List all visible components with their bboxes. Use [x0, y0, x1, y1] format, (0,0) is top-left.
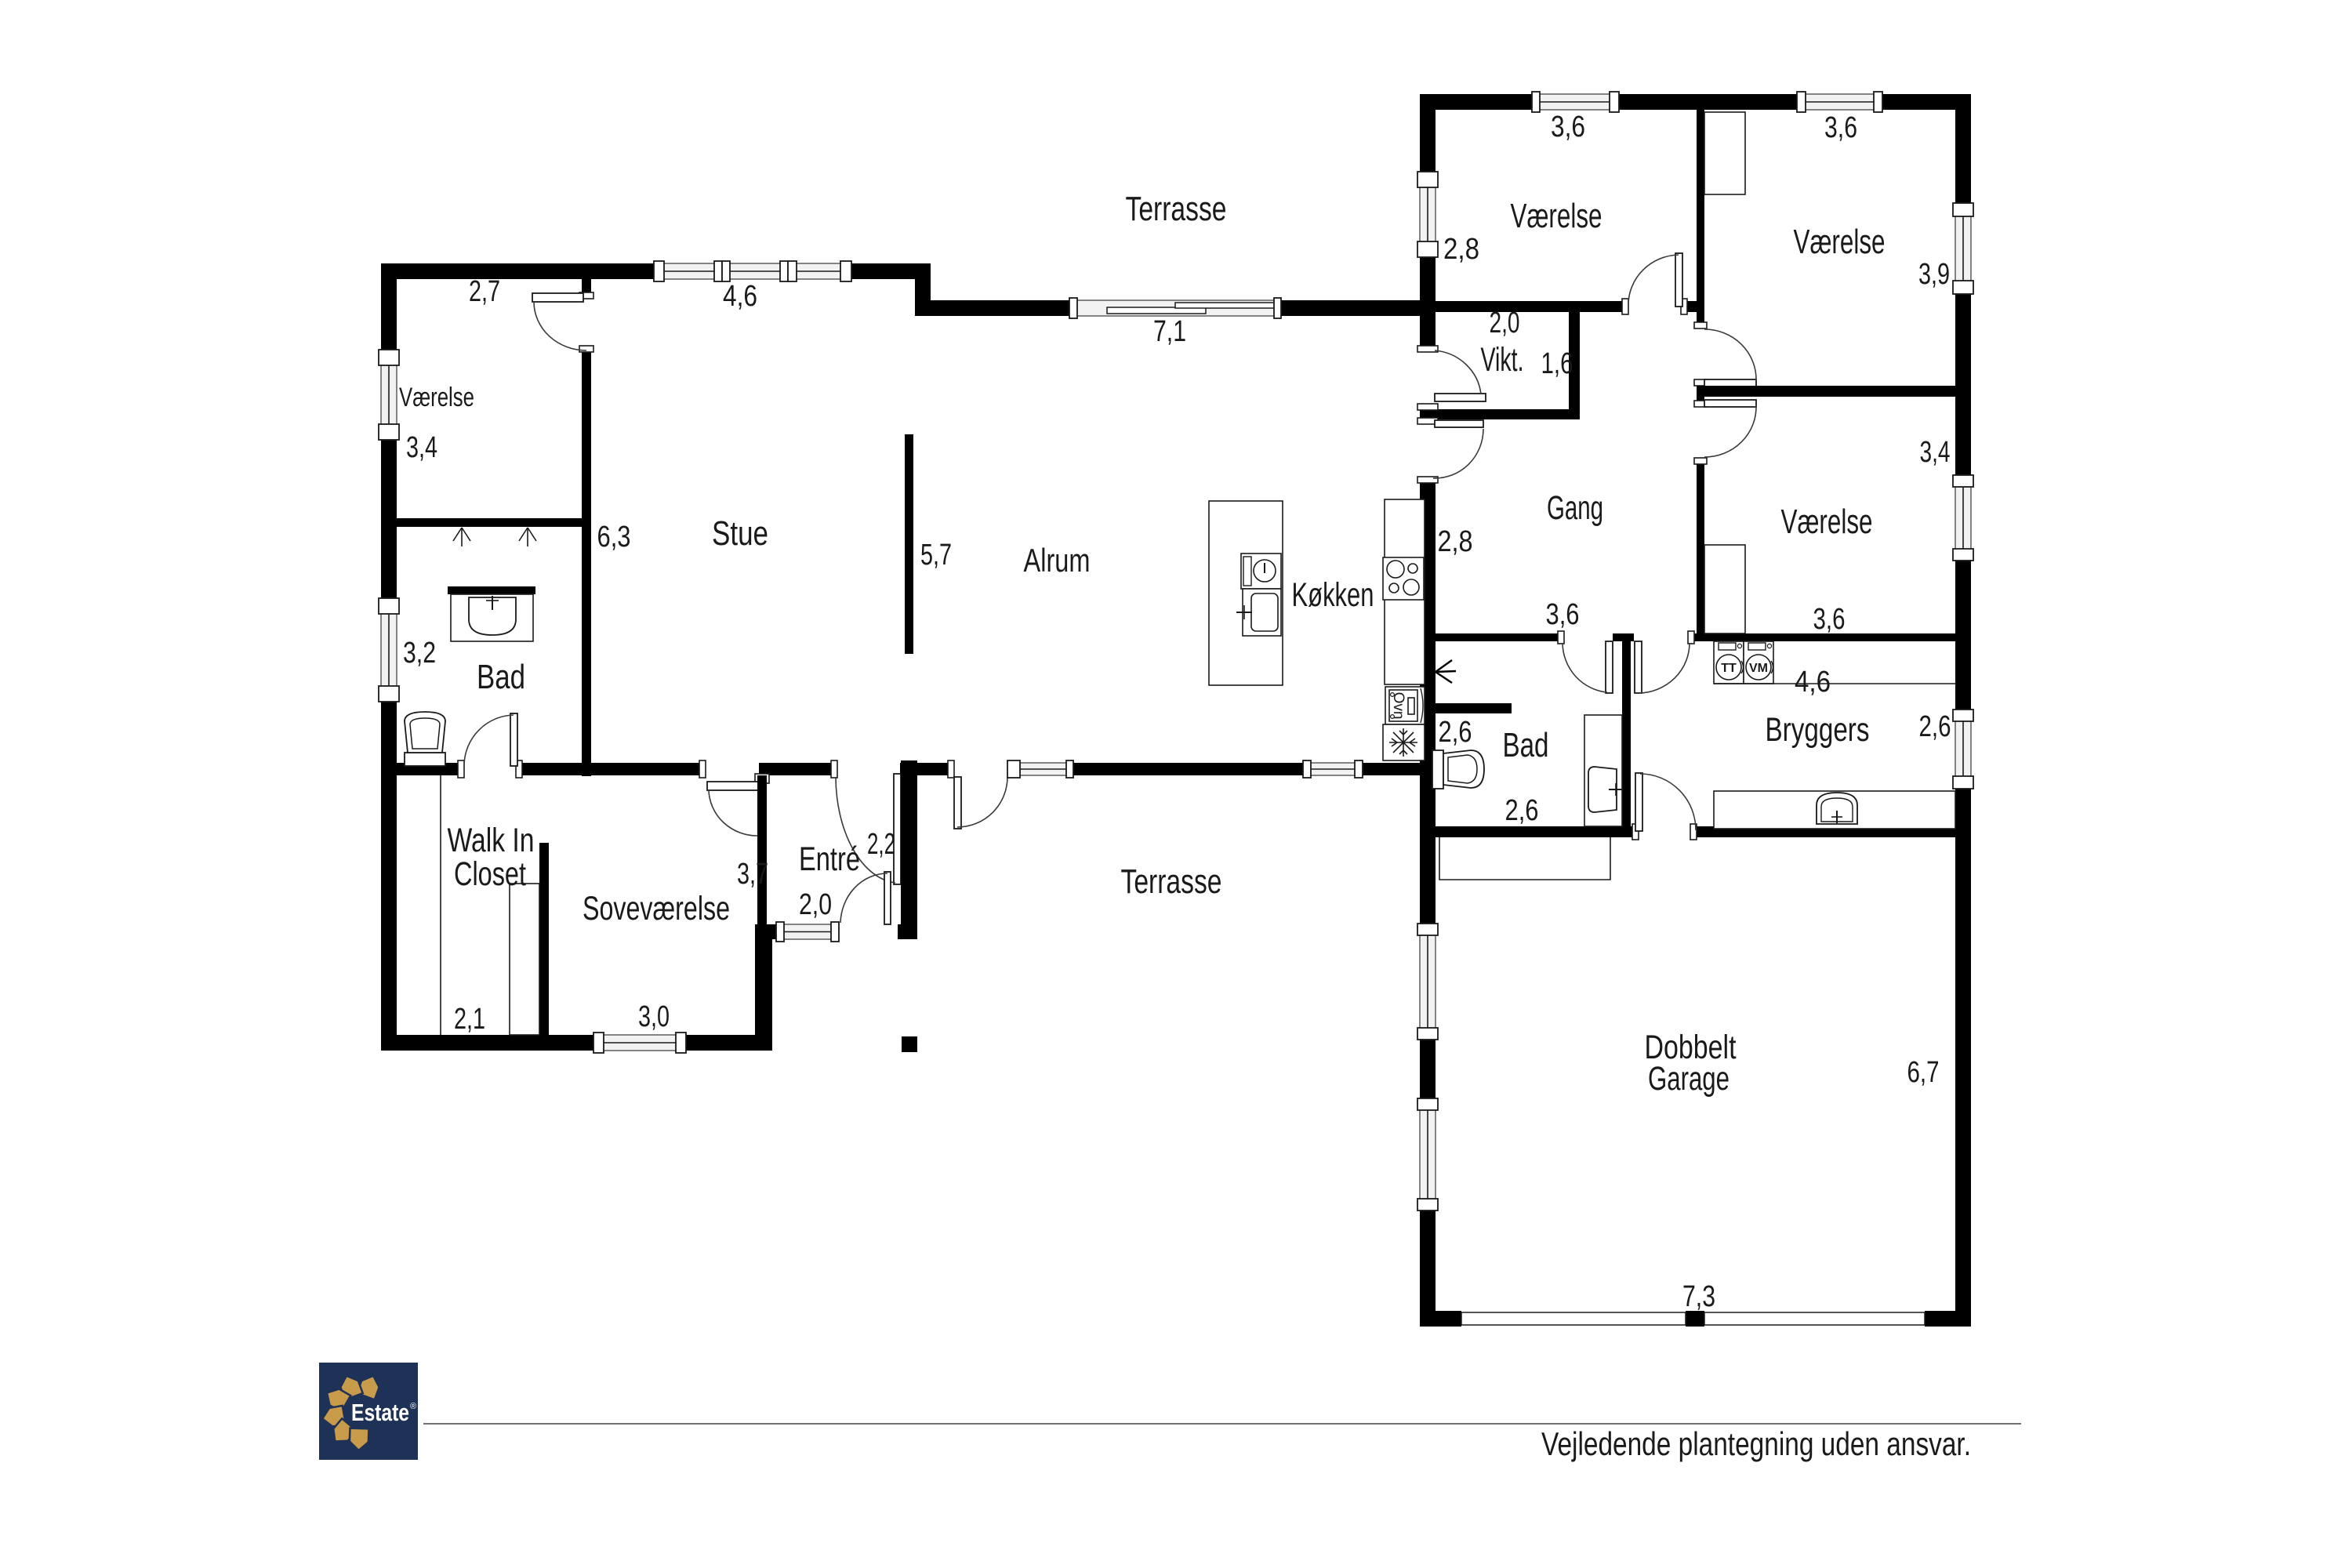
svg-text:4,6: 4,6 [1795, 666, 1831, 699]
svg-text:Værelse: Værelse [1511, 197, 1602, 235]
svg-text:Alrum: Alrum [1024, 542, 1091, 579]
svg-text:3,7: 3,7 [737, 858, 768, 891]
svg-text:TT: TT [1721, 662, 1737, 675]
svg-text:2,8: 2,8 [1443, 233, 1479, 266]
svg-text:Ovn: Ovn [1390, 692, 1406, 720]
svg-text:1,6: 1,6 [1541, 347, 1573, 380]
svg-text:2,0: 2,0 [799, 888, 832, 921]
svg-text:Værelse: Værelse [399, 383, 474, 412]
svg-text:®: ® [410, 1402, 416, 1411]
svg-text:5,7: 5,7 [920, 539, 952, 572]
svg-text:2,6: 2,6 [1439, 716, 1472, 749]
svg-text:3,0: 3,0 [638, 1000, 670, 1033]
svg-text:2,6: 2,6 [1919, 710, 1951, 743]
svg-text:2,8: 2,8 [1438, 525, 1473, 558]
svg-text:3,6: 3,6 [1824, 111, 1857, 144]
svg-text:Værelse: Værelse [1794, 223, 1886, 261]
svg-text:Vikt.: Vikt. [1481, 341, 1524, 379]
svg-text:2,0: 2,0 [1490, 307, 1520, 339]
svg-text:Garage: Garage [1648, 1060, 1730, 1098]
svg-text:Soveværelse: Soveværelse [583, 890, 730, 927]
svg-text:Entré: Entré [799, 840, 860, 878]
svg-text:6,3: 6,3 [597, 521, 631, 554]
svg-text:Gang: Gang [1547, 489, 1603, 527]
svg-text:4,6: 4,6 [723, 280, 757, 313]
svg-text:6,7: 6,7 [1907, 1056, 1940, 1089]
svg-text:Vejledende plantegning uden an: Vejledende plantegning uden ansvar. [1541, 1425, 1971, 1462]
svg-text:Stue: Stue [712, 514, 768, 553]
svg-text:7,1: 7,1 [1153, 315, 1186, 348]
svg-text:2,6: 2,6 [1505, 794, 1539, 827]
svg-text:2,2: 2,2 [867, 828, 895, 861]
svg-text:Terrasse: Terrasse [1121, 862, 1222, 901]
svg-text:3,6: 3,6 [1546, 598, 1580, 631]
svg-text:7,3: 7,3 [1682, 1280, 1715, 1313]
svg-text:3,6: 3,6 [1551, 111, 1585, 143]
svg-text:Værelse: Værelse [1781, 503, 1873, 541]
svg-text:Terrasse: Terrasse [1126, 190, 1227, 228]
svg-text:3,4: 3,4 [1920, 436, 1951, 469]
svg-text:3,2: 3,2 [403, 637, 436, 670]
svg-text:Køkken: Køkken [1292, 576, 1374, 614]
svg-text:Estate: Estate [351, 1399, 409, 1426]
svg-text:3,9: 3,9 [1918, 258, 1950, 291]
svg-text:VM: VM [1749, 662, 1768, 675]
svg-text:Bryggers: Bryggers [1766, 711, 1870, 749]
svg-text:Walk In: Walk In [448, 822, 535, 859]
svg-text:Bad: Bad [1503, 726, 1549, 764]
svg-text:3,6: 3,6 [1813, 603, 1846, 636]
svg-text:3,4: 3,4 [406, 431, 437, 464]
svg-text:Closet: Closet [454, 855, 526, 893]
svg-text:2,7: 2,7 [469, 275, 500, 308]
svg-text:Bad: Bad [477, 658, 525, 696]
svg-text:2,1: 2,1 [454, 1003, 485, 1036]
